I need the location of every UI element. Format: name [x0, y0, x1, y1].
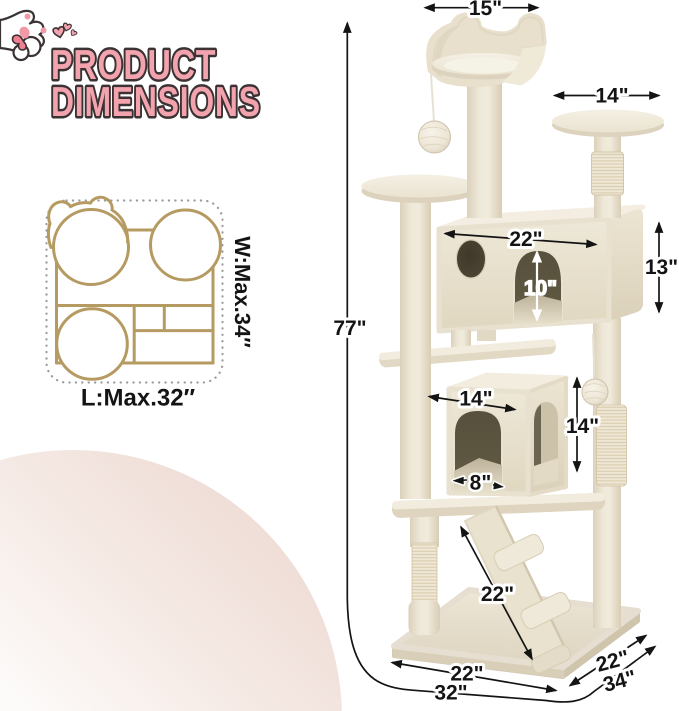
- svg-text:15": 15": [469, 0, 502, 20]
- svg-text:8": 8": [470, 472, 492, 495]
- svg-text:W:Max.34″: W:Max.34″: [230, 236, 255, 348]
- svg-text:14": 14": [566, 415, 599, 438]
- svg-text:DIMENSIONS: DIMENSIONS: [51, 78, 261, 125]
- svg-text:22": 22": [450, 663, 483, 686]
- svg-text:L:Max.32″: L:Max.32″: [81, 385, 196, 412]
- svg-text:22": 22": [481, 583, 514, 606]
- svg-text:10": 10": [524, 277, 557, 300]
- svg-text:14": 14": [595, 85, 628, 108]
- svg-text:77": 77": [333, 317, 366, 340]
- svg-text:14": 14": [459, 388, 492, 411]
- svg-text:22": 22": [509, 228, 542, 251]
- svg-text:13": 13": [645, 256, 678, 279]
